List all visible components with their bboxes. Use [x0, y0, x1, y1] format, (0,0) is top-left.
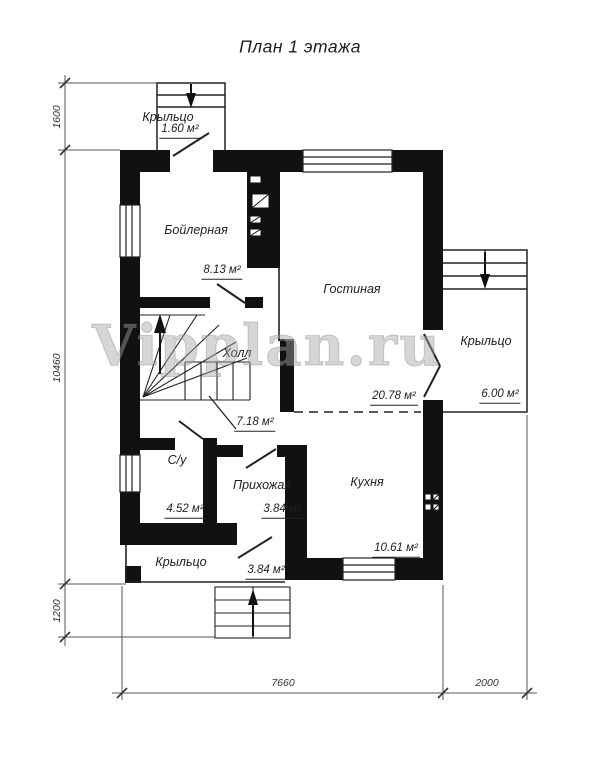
leader-lines [209, 396, 236, 429]
porch-top-down-arrow [186, 84, 196, 108]
dim-left-10460: 10460 [52, 353, 63, 382]
room-area-wc: 4.52 м² [164, 504, 205, 519]
room-area-porch-top: 1.60 м² [159, 124, 200, 139]
room-area-boiler: 8.13 м² [201, 265, 242, 280]
room-label-porch-top: Крыльцо [142, 111, 193, 124]
room-area-porch-bottom: 3.84 м² [245, 565, 286, 580]
room-label-boiler: Бойлерная [164, 224, 228, 237]
porch-right-down-arrow [480, 252, 490, 289]
floor-plan-drawing [0, 0, 600, 771]
interior-wall-thin-lines [278, 268, 294, 341]
floor-plan-page: План 1 этажа Vipplan.ru [0, 0, 600, 771]
room-area-living: 20.78 м² [370, 391, 418, 406]
room-label-porch-bottom: Крыльцо [155, 556, 206, 569]
room-area-kitchen: 10.61 м² [372, 543, 420, 558]
dim-left-1200: 1200 [52, 599, 63, 622]
room-area-porch-right: 6.00 м² [479, 389, 520, 404]
room-label-entry: Прихожая [233, 479, 291, 492]
room-area-hall: 7.18 м² [234, 417, 275, 432]
page-title: План 1 этажа [239, 37, 361, 58]
dim-left-1600: 1600 [52, 105, 63, 128]
room-label-porch-right: Крыльцо [460, 335, 511, 348]
room-label-living: Гостиная [323, 283, 380, 296]
room-label-hall: Холл [223, 347, 252, 360]
room-label-kitchen: Кухня [350, 476, 383, 489]
dim-bottom-7660: 7660 [271, 678, 294, 689]
room-label-wc: С/у [168, 454, 187, 467]
dim-bottom-2000: 2000 [475, 678, 498, 689]
room-area-entry: 3.84 м² [261, 504, 302, 519]
